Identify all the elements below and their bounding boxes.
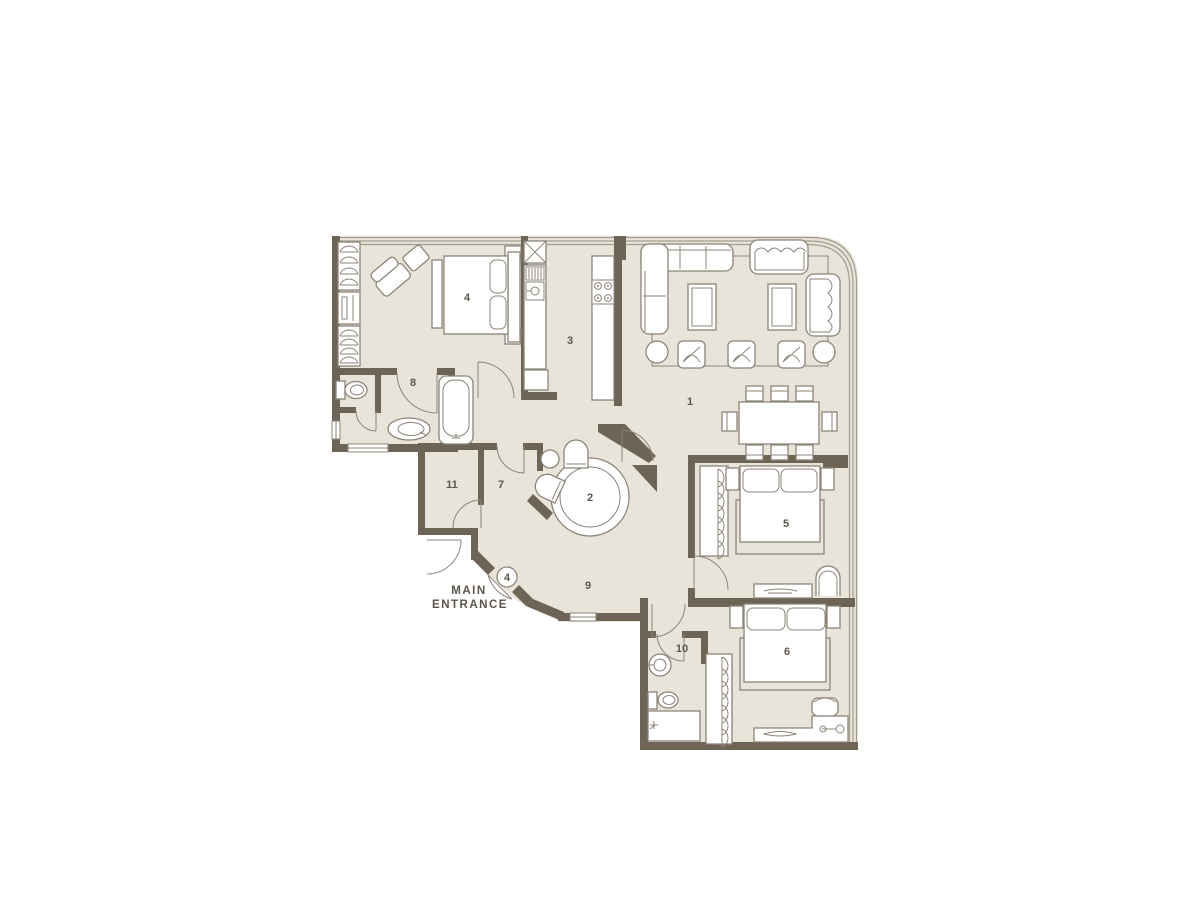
window-corridor — [570, 613, 596, 621]
double-bed — [726, 466, 834, 554]
room-label-living-dining: 1 — [687, 396, 693, 408]
window-bath8 — [348, 444, 388, 452]
chair — [564, 440, 588, 468]
small-round-table — [541, 450, 559, 468]
entrance-label-line1: MAIN — [451, 585, 486, 597]
entrance-badge-number: 4 — [504, 572, 511, 584]
room-label-bedroom-6: 6 — [784, 646, 790, 658]
room-label-hallway: 7 — [498, 479, 504, 491]
floor-plan-page: 4 MAIN ENTRANCE 1 2 3 4 5 6 7 8 9 10 11 — [0, 0, 1196, 922]
loveseat — [750, 240, 808, 274]
toilet — [336, 381, 367, 399]
bathtub — [439, 376, 473, 444]
refrigerator — [524, 241, 546, 263]
toilet — [648, 692, 678, 709]
room-label-corridor: 9 — [585, 580, 591, 592]
stove-4-burners — [592, 280, 614, 304]
vanity-desk — [754, 584, 812, 598]
wardrobe-hangers — [338, 326, 360, 366]
room-label-bedroom-4: 4 — [464, 292, 471, 304]
room-label-round-hall: 2 — [587, 492, 593, 504]
armchair — [728, 341, 755, 368]
coffee-table — [688, 284, 716, 330]
wardrobe-hangers — [338, 242, 360, 290]
round-sink — [649, 654, 671, 676]
wardrobe-hangers — [706, 654, 732, 747]
window-left-wall — [332, 421, 340, 439]
coffee-table — [768, 284, 796, 330]
stool — [816, 566, 840, 596]
kitchen-counter-left — [524, 265, 548, 390]
round-side-table — [813, 341, 835, 363]
round-side-table — [646, 341, 668, 363]
wardrobe-hangers — [700, 466, 728, 559]
room-label-bathroom-8: 8 — [410, 377, 416, 389]
double-bed — [432, 246, 521, 344]
armchair — [678, 341, 705, 368]
sink — [388, 418, 430, 440]
sofa-right — [806, 274, 840, 336]
room-label-bedroom-5: 5 — [783, 518, 789, 530]
kitchen-counter-right — [592, 256, 614, 400]
dressing-mirror — [338, 292, 360, 324]
entrance-label-line2: ENTRANCE — [432, 599, 508, 611]
shower-tray — [648, 711, 700, 741]
room-label-bathroom-10: 10 — [676, 643, 688, 655]
room-label-kitchen: 3 — [567, 335, 573, 347]
room-label-closet: 11 — [446, 479, 458, 491]
armchair — [778, 341, 805, 368]
floor-plan-svg: 4 MAIN ENTRANCE 1 2 3 4 5 6 7 8 9 10 11 — [0, 0, 1196, 922]
